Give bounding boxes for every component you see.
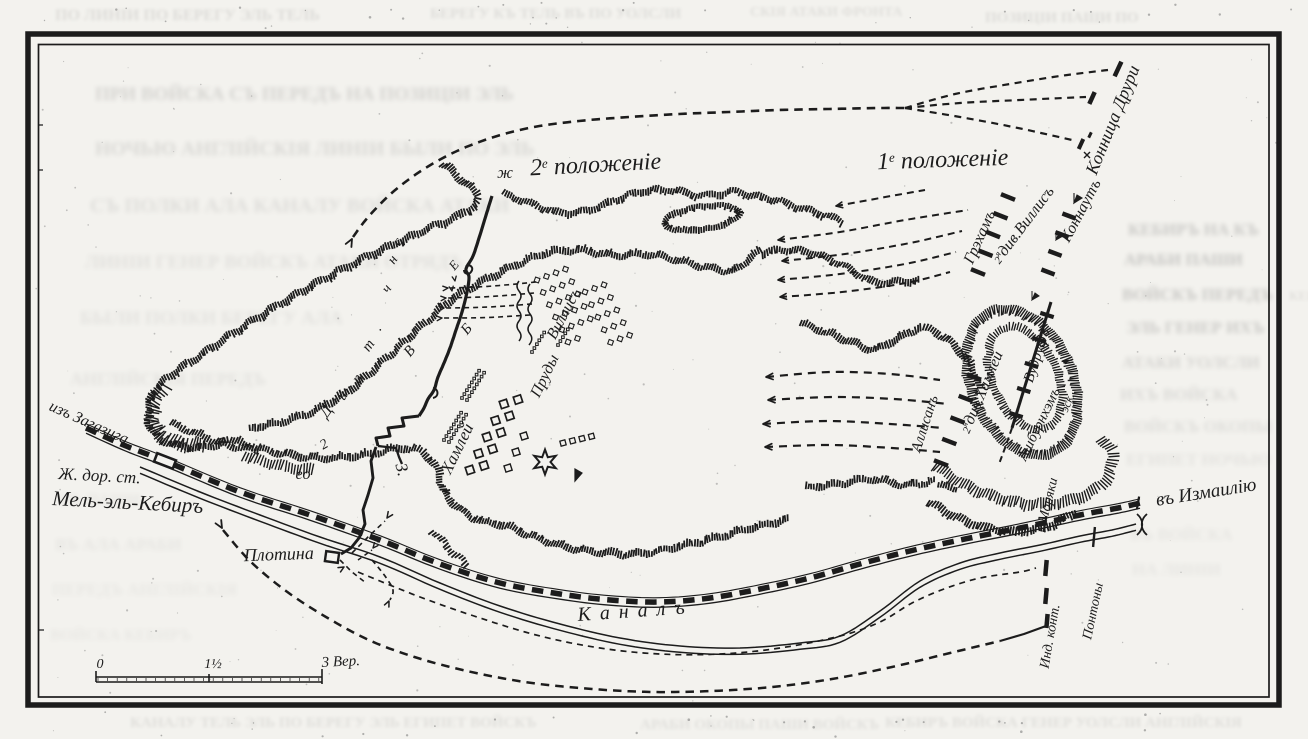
svg-text:КЕБИРЪ ВОЙСКА ГЕНЕР УОЛСЛИ: КЕБИРЪ ВОЙСКА ГЕНЕР УОЛСЛИ АНГЛІЙСКІЯ [885,714,1242,731]
svg-text:1½: 1½ [204,657,222,672]
svg-text:СЪ ПОЛКИ АЛА КАНАЛУ ВОЙСКА: СЪ ПОЛКИ АЛА КАНАЛУ ВОЙСКА АТАКИ [90,194,510,217]
svg-text:ВОЙСКЪ ОКОПЫ: ВОЙСКЪ ОКОПЫ [1124,417,1272,436]
svg-text:АРАБИ ОКОПЫ ПАШИ ВОЙСКЪ: АРАБИ ОКОПЫ ПАШИ ВОЙСКЪ [640,716,879,733]
svg-text:НА ЛИНІИ: НА ЛИНІИ [1132,560,1221,579]
svg-text:1е положеніе: 1е положеніе [877,145,1009,176]
svg-text:ЕГИПЕТ НОЧЬЮ: ЕГИПЕТ НОЧЬЮ [1126,450,1270,469]
svg-text:НОЧЬЮ АНГЛІЙСКІЯ ЛИНІИ БЫЛИ: НОЧЬЮ АНГЛІЙСКІЯ ЛИНІИ БЫЛИ ПО ЭЛЬ [95,137,534,160]
svg-text:ЭЛЬ ГЕНЕР ИХЪ: ЭЛЬ ГЕНЕР ИХЪ [1126,318,1264,337]
svg-text:ПО ЛИНІИ ПО БЕРЕГУ ЭЛЬ ТЕ: ПО ЛИНІИ ПО БЕРЕГУ ЭЛЬ ТЕЛЬ [55,7,320,24]
svg-text:ВЪ АЛА АРАБИ: ВЪ АЛА АРАБИ [55,535,181,554]
svg-text:ео: ео [296,466,311,483]
svg-text:ПОЗИЦІИ ПАШИ ПО: ПОЗИЦІИ ПАШИ ПО [985,10,1139,26]
svg-text:БЫЛИ ПОЛКИ БЕРЕГУ АЛА: БЫЛИ ПОЛКИ БЕРЕГУ АЛА [80,308,343,329]
svg-text:ж: ж [497,163,513,182]
svg-text:АРАБИ ПАШИ: АРАБИ ПАШИ [1124,250,1243,269]
svg-text:ИХЪ ВОЙСКА: ИХЪ ВОЙСКА [1120,385,1238,404]
svg-text:ПЕРЕДЪ АНГЛІЙСКІЯ: ПЕРЕДЪ АНГЛІЙСКІЯ [52,580,237,599]
svg-text:АТАКИ УОЛСЛИ: АТАКИ УОЛСЛИ [1122,353,1260,372]
svg-text:ВОЙСКА КЕБИРЪ: ВОЙСКА КЕБИРЪ [50,625,192,644]
svg-text:0: 0 [97,657,104,672]
svg-text:КЕБИРЪ: КЕБИРЪ [1289,288,1308,303]
svg-text:ЛИНІИ ГЕНЕР ВОЙСКЪ АТАКИ О: ЛИНІИ ГЕНЕР ВОЙСКЪ АТАКИ ОТРЯДЪ [85,251,463,273]
svg-text:КАНАЛУ ТЕЛЬ ЭЛЬ ПО БЕРЕГУ: КАНАЛУ ТЕЛЬ ЭЛЬ ПО БЕРЕГУ ЭЛЬ ЕГИПЕТ ВОЙ… [130,714,537,731]
svg-text:ПРИ ВОЙСКА СЪ ПЕРЕДЪ НА П: ПРИ ВОЙСКА СЪ ПЕРЕДЪ НА ПОЗИЦІИ ЭЛЬ [95,83,514,105]
svg-text:СКІЯ АТАКИ ФРОНТА: СКІЯ АТАКИ ФРОНТА [750,5,903,20]
svg-text:3 Вер.: 3 Вер. [320,653,360,671]
svg-text:БЕРЕГУ КЪ ТЕЛЬ ВЪ ПО УОЛС: БЕРЕГУ КЪ ТЕЛЬ ВЪ ПО УОЛСЛИ [430,6,682,22]
svg-text:КЕБИРЪ НА КЪ: КЕБИРЪ НА КЪ [1128,220,1259,239]
svg-text:ВОЙСКЪ ПЕРЕДЪ: ВОЙСКЪ ПЕРЕДЪ [1122,285,1273,304]
svg-text:Плотина: Плотина [242,543,314,565]
